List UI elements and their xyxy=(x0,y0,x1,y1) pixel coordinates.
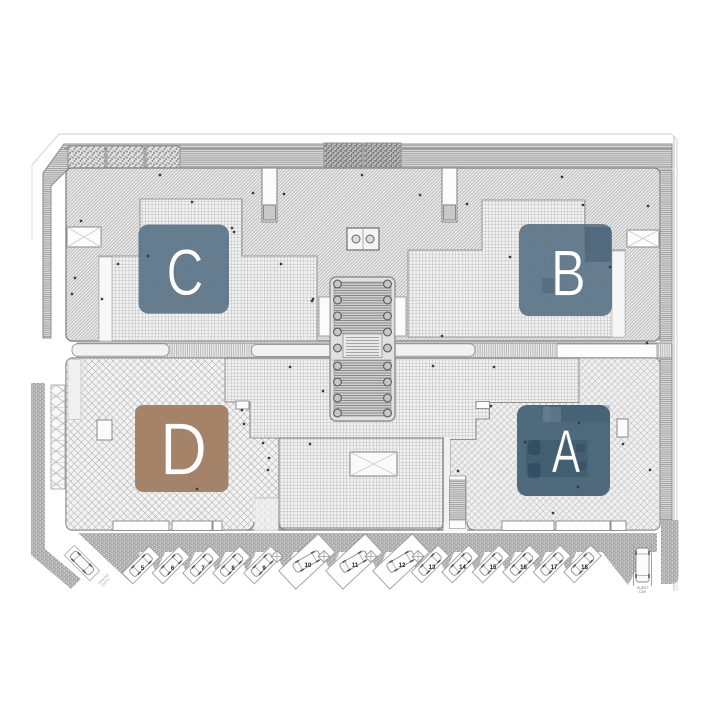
svg-text:16: 16 xyxy=(520,565,527,571)
svg-text:10: 10 xyxy=(305,563,312,569)
svg-text:CAR: CAR xyxy=(639,590,647,594)
svg-text:C: C xyxy=(166,235,203,310)
svg-text:18: 18 xyxy=(581,565,588,571)
svg-text:12: 12 xyxy=(399,563,406,569)
svg-text:D: D xyxy=(160,408,207,491)
svg-text:13: 13 xyxy=(429,565,436,571)
svg-text:17: 17 xyxy=(551,565,558,571)
svg-text:11: 11 xyxy=(352,563,359,569)
svg-text:B: B xyxy=(551,236,586,310)
svg-text:15: 15 xyxy=(490,565,497,571)
svg-text:14: 14 xyxy=(459,565,466,571)
svg-text:A: A xyxy=(552,418,581,486)
